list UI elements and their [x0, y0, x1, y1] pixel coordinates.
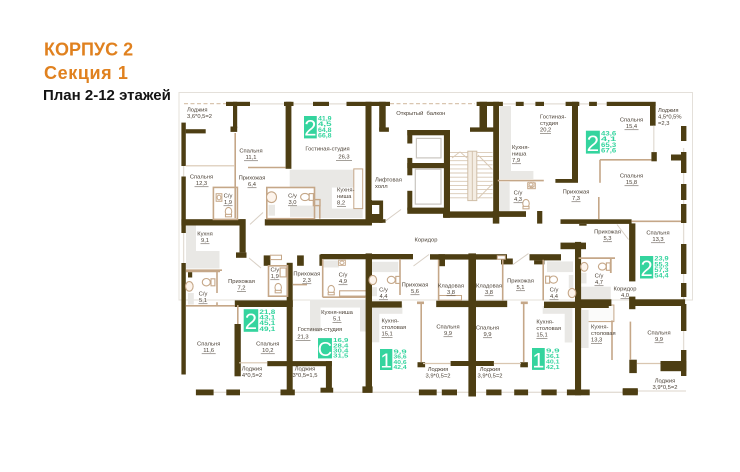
- svg-text:4,4: 4,4: [379, 294, 388, 300]
- svg-text:4,4: 4,4: [550, 294, 559, 300]
- svg-text:5,1: 5,1: [199, 298, 207, 304]
- svg-text:Коридор: Коридор: [614, 287, 637, 293]
- svg-text:С/у: С/у: [550, 288, 559, 294]
- svg-text:11,6: 11,6: [203, 348, 214, 354]
- svg-text:15,4: 15,4: [626, 124, 638, 130]
- svg-text:Кухня-: Кухня-: [591, 325, 609, 331]
- svg-text:С/у: С/у: [270, 268, 279, 274]
- svg-text:5,6: 5,6: [411, 289, 419, 295]
- svg-text:20,2: 20,2: [540, 128, 551, 134]
- svg-text:4,5*0,5%: 4,5*0,5%: [658, 115, 682, 121]
- svg-text:Прихожая: Прихожая: [563, 190, 590, 196]
- svg-text:11,1: 11,1: [246, 155, 257, 161]
- svg-text:5,3: 5,3: [603, 236, 611, 242]
- svg-text:Лоджия: Лоджия: [658, 108, 679, 114]
- svg-text:Кладовая: Кладовая: [438, 284, 464, 290]
- svg-text:3,0: 3,0: [288, 200, 296, 206]
- svg-text:3,9*0,5=2: 3,9*0,5=2: [426, 374, 451, 380]
- svg-text:Лоджия: Лоджия: [242, 367, 263, 373]
- svg-text:6,4: 6,4: [248, 182, 257, 188]
- svg-text:С/у: С/у: [379, 288, 388, 294]
- svg-text:С/у: С/у: [199, 292, 208, 298]
- svg-text:26,3: 26,3: [338, 155, 349, 161]
- svg-text:КОРПУС 2: КОРПУС 2: [44, 40, 133, 60]
- svg-text:столовая: столовая: [591, 331, 616, 337]
- svg-text:Гостиная-студия: Гостиная-студия: [298, 327, 342, 333]
- svg-text:С/у: С/у: [288, 194, 297, 200]
- svg-text:9,9: 9,9: [444, 331, 452, 337]
- svg-text:67,6: 67,6: [601, 149, 617, 155]
- svg-text:ниша: ниша: [337, 194, 352, 200]
- svg-text:3,9*0,5=2: 3,9*0,5=2: [653, 385, 678, 391]
- svg-text:Прихожая: Прихожая: [594, 230, 621, 236]
- svg-text:Лоджия: Лоджия: [187, 108, 208, 114]
- svg-text:Лифтовая: Лифтовая: [375, 178, 402, 184]
- svg-text:9,9: 9,9: [483, 332, 491, 338]
- svg-text:Спальня: Спальня: [190, 175, 213, 181]
- svg-text:1,9: 1,9: [271, 274, 279, 280]
- svg-text:4,7: 4,7: [595, 280, 603, 286]
- svg-text:Секция 1: Секция 1: [44, 63, 128, 83]
- svg-text:66,8: 66,8: [318, 133, 332, 139]
- svg-text:13,3: 13,3: [652, 237, 663, 243]
- svg-text:7,3: 7,3: [572, 196, 580, 202]
- svg-text:2,3: 2,3: [303, 278, 311, 284]
- svg-text:12,3: 12,3: [196, 181, 207, 187]
- svg-text:Коридор: Коридор: [415, 238, 438, 244]
- svg-text:Прихожая: Прихожая: [228, 279, 255, 285]
- svg-text:Лоджия: Лоджия: [295, 367, 316, 373]
- svg-text:7,2: 7,2: [237, 286, 245, 292]
- svg-text:21,3: 21,3: [297, 335, 308, 341]
- svg-text:Кладовая: Кладовая: [476, 284, 502, 290]
- svg-text:Спальня: Спальня: [647, 331, 670, 337]
- svg-text:С/у: С/у: [224, 194, 233, 200]
- svg-text:2: 2: [304, 116, 316, 141]
- svg-text:Лоджия: Лоджия: [480, 367, 501, 373]
- svg-text:5,1: 5,1: [333, 317, 341, 323]
- svg-text:8,2: 8,2: [337, 201, 345, 207]
- svg-text:49,1: 49,1: [259, 327, 276, 333]
- svg-text:15,1: 15,1: [536, 333, 547, 339]
- svg-text:3,9*0,5=2: 3,9*0,5=2: [478, 374, 503, 380]
- svg-text:1: 1: [380, 349, 391, 372]
- svg-text:Спальня: Спальня: [620, 174, 643, 180]
- svg-text:31,5: 31,5: [333, 353, 348, 359]
- svg-text:столовая: столовая: [536, 326, 561, 332]
- svg-text:Кухня-: Кухня-: [337, 188, 355, 194]
- svg-text:Прихожая: Прихожая: [239, 176, 266, 182]
- svg-text:Спальня: Спальня: [476, 326, 499, 332]
- svg-text:Лоджия: Лоджия: [428, 367, 449, 373]
- svg-text:Спальня: Спальня: [197, 342, 220, 348]
- svg-text:42,4: 42,4: [394, 365, 408, 371]
- svg-text:студия: студия: [540, 121, 558, 127]
- svg-text:10,2: 10,2: [262, 348, 273, 354]
- svg-text:Лоджия: Лоджия: [655, 379, 676, 385]
- svg-text:Спальня: Спальня: [436, 325, 459, 331]
- svg-text:Прихожая: Прихожая: [507, 279, 534, 285]
- svg-text:С/у: С/у: [595, 274, 604, 280]
- svg-text:7,9: 7,9: [512, 158, 520, 164]
- svg-text:С: С: [318, 339, 332, 361]
- svg-text:13,3: 13,3: [591, 338, 602, 344]
- svg-text:2: 2: [640, 256, 652, 281]
- svg-text:Открытый балкон: Открытый балкон: [396, 110, 445, 117]
- svg-text:9,9: 9,9: [655, 337, 663, 343]
- svg-text:Спальня: Спальня: [239, 149, 262, 155]
- svg-text:Кухня-: Кухня-: [512, 145, 530, 151]
- svg-text:Кухня: Кухня: [197, 232, 213, 238]
- svg-text:4,3: 4,3: [514, 197, 522, 203]
- svg-text:План 2-12 этажей: План 2-12 этажей: [43, 87, 171, 104]
- svg-text:Спальня: Спальня: [646, 231, 669, 237]
- svg-text:2: 2: [587, 131, 599, 156]
- svg-text:3,8: 3,8: [485, 290, 493, 296]
- svg-text:Кухня-: Кухня-: [536, 320, 554, 326]
- svg-text:15,8: 15,8: [626, 180, 637, 186]
- svg-text:15,1: 15,1: [382, 332, 393, 338]
- svg-text:С/у: С/у: [514, 191, 523, 197]
- svg-text:3,6*0,5=2: 3,6*0,5=2: [187, 114, 212, 120]
- svg-text:Прихожая: Прихожая: [402, 283, 429, 289]
- svg-text:Гостиная-студия: Гостиная-студия: [305, 147, 349, 153]
- svg-text:9,1: 9,1: [201, 238, 209, 244]
- svg-text:3*0,5=1,5: 3*0,5=1,5: [293, 373, 318, 379]
- svg-text:1,9: 1,9: [224, 200, 232, 206]
- svg-text:4*0,5=2: 4*0,5=2: [242, 373, 262, 379]
- svg-text:С/у: С/у: [339, 273, 348, 279]
- svg-text:Прихожая: Прихожая: [293, 272, 320, 278]
- svg-text:ниша: ниша: [512, 152, 527, 158]
- svg-text:4,0: 4,0: [621, 293, 629, 299]
- svg-text:столовая: столовая: [382, 325, 407, 331]
- svg-text:Спальня: Спальня: [620, 118, 643, 124]
- svg-text:Кухня-: Кухня-: [382, 319, 400, 325]
- svg-text:42,1: 42,1: [546, 365, 561, 371]
- svg-text:5,1: 5,1: [516, 285, 524, 291]
- svg-text:54,4: 54,4: [654, 274, 669, 280]
- svg-text:Гостиная-: Гостиная-: [540, 115, 566, 121]
- svg-text:холл: холл: [375, 184, 388, 190]
- svg-text:Кухня-ниша: Кухня-ниша: [321, 310, 354, 316]
- svg-text:1: 1: [532, 348, 544, 372]
- svg-text:3,8: 3,8: [447, 290, 455, 296]
- svg-text:2: 2: [245, 309, 257, 334]
- svg-text:4,9: 4,9: [339, 279, 347, 285]
- svg-text:Спальня: Спальня: [256, 342, 279, 348]
- svg-text:=2,3: =2,3: [658, 121, 669, 127]
